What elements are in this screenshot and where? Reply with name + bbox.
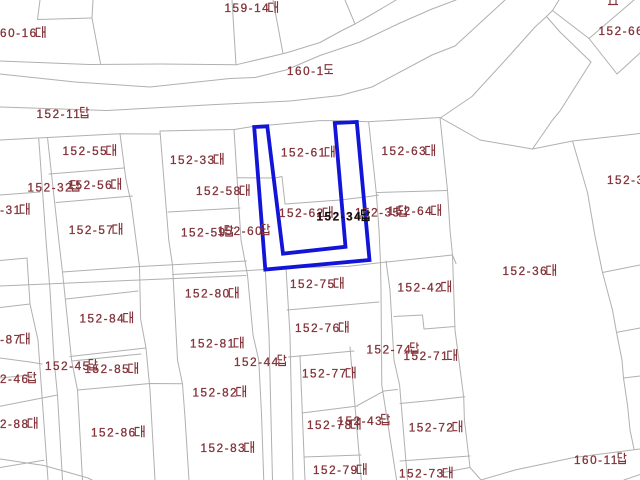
svg-text:152-72: 152-72 — [409, 421, 455, 434]
svg-text:152-77: 152-77 — [302, 368, 348, 381]
svg-text:152-81: 152-81 — [190, 338, 236, 351]
svg-text:159-14: 159-14 — [225, 2, 271, 15]
svg-text:152-82: 152-82 — [193, 386, 239, 399]
svg-text:152-86: 152-86 — [91, 426, 137, 439]
svg-text:152-64: 152-64 — [388, 205, 434, 218]
svg-text:152-75: 152-75 — [290, 278, 336, 291]
svg-text:152-78: 152-78 — [307, 419, 353, 432]
svg-text:152-32: 152-32 — [28, 181, 74, 194]
svg-text:152-58: 152-58 — [196, 185, 242, 198]
svg-text:152-63: 152-63 — [382, 145, 428, 158]
svg-text:152-71: 152-71 — [404, 350, 450, 363]
svg-text:152-45: 152-45 — [45, 360, 91, 373]
svg-text:152-60: 152-60 — [218, 225, 264, 238]
svg-text:152-73: 152-73 — [399, 468, 445, 480]
svg-text:152-36: 152-36 — [503, 265, 549, 278]
svg-text:152-31: 152-31 — [0, 204, 22, 217]
svg-text:152-55: 152-55 — [63, 145, 109, 158]
svg-text:152-34: 152-34 — [317, 211, 363, 224]
svg-text:152-87: 152-87 — [0, 334, 22, 347]
svg-text:160-16: 160-16 — [0, 27, 38, 40]
svg-text:152-3: 152-3 — [607, 174, 640, 187]
svg-text:152-44: 152-44 — [234, 356, 280, 369]
svg-text:152-79: 152-79 — [313, 464, 359, 477]
svg-text:160-1: 160-1 — [287, 65, 325, 78]
svg-text:152-66: 152-66 — [599, 25, 640, 38]
svg-text:152-61: 152-61 — [281, 147, 327, 160]
svg-text:160-11: 160-11 — [574, 454, 619, 467]
svg-text:152-11: 152-11 — [37, 108, 82, 121]
svg-text:152-57: 152-57 — [69, 224, 115, 237]
svg-text:152-83: 152-83 — [201, 442, 247, 455]
svg-text:152-33: 152-33 — [170, 154, 216, 167]
svg-text:152-84: 152-84 — [80, 312, 126, 325]
svg-text:152-80: 152-80 — [185, 288, 231, 301]
svg-text:152-76: 152-76 — [295, 322, 341, 335]
svg-text:152-88: 152-88 — [0, 418, 30, 431]
svg-text:152-46: 152-46 — [0, 373, 30, 386]
svg-text:152-56: 152-56 — [68, 179, 114, 192]
svg-text:152-42: 152-42 — [398, 281, 444, 294]
